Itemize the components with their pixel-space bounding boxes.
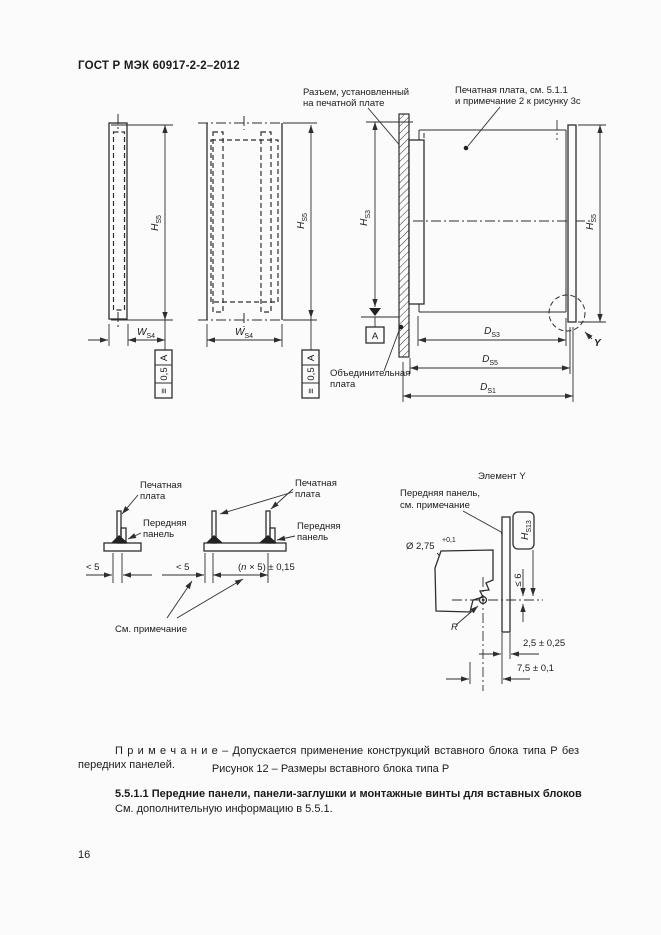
panel-note-label: Передняя панель, xyxy=(400,488,480,499)
svg-text:0,5: 0,5 xyxy=(306,367,317,380)
datum-triangle xyxy=(369,308,381,316)
top-figure: Разъем, установленный на печатной плате … xyxy=(0,80,661,415)
bottom-figure: Печатная плата Передняя панель < 5 Печат… xyxy=(0,465,661,700)
single-board-section: Печатная плата Передняя панель < 5 xyxy=(86,480,187,583)
svg-text:плата: плата xyxy=(140,491,166,502)
datum-a-label: A xyxy=(372,331,379,342)
section-heading: 5.5.1.1 Передние панели, панели-заглушки… xyxy=(115,788,582,800)
dim-lt5-label: < 5 xyxy=(86,562,99,573)
connector-body xyxy=(409,140,424,304)
svg-text:плата: плата xyxy=(330,379,356,390)
dim-ds1-label: DS1 xyxy=(480,382,496,395)
leader-dot xyxy=(399,325,404,330)
svg-text:A: A xyxy=(159,354,170,361)
dim-hs5-label: HS5 xyxy=(150,215,163,231)
page-number: 16 xyxy=(78,849,90,861)
backplane-bar xyxy=(399,114,409,357)
front-panel-bar xyxy=(568,125,576,322)
dim-ws4-label: WS4 xyxy=(235,327,253,340)
svg-text:см. примечание: см. примечание xyxy=(400,500,470,511)
tolerance-frame: A 0,5 ≡ xyxy=(155,350,172,398)
mount-foot xyxy=(259,535,277,543)
svg-text:панель: панель xyxy=(297,532,328,543)
front-view-unit: WS4 HS5 A 0,5 ≡ xyxy=(198,116,319,398)
detail-circle-y xyxy=(549,295,585,331)
svg-text:Объединительная: Объединительная xyxy=(330,368,410,379)
side-view-unit: HS5 WS4 A 0,5 ≡ xyxy=(88,114,173,398)
dim-ds5-label: DS5 xyxy=(482,354,498,367)
front-panel-bar xyxy=(502,517,510,632)
dim-ds3-label: DS3 xyxy=(484,326,500,339)
figure-caption: Рисунок 12 – Размеры вставного блока тип… xyxy=(0,763,661,775)
svg-text:Печатная плата, см. 5.1.1: Печатная плата, см. 5.1.1 xyxy=(455,85,568,96)
callout-pcb: Печатная плата, см. 5.1.1 и примечание 2… xyxy=(455,85,581,150)
see-note-label: См. примечание xyxy=(115,624,187,635)
svg-text:0,5: 0,5 xyxy=(159,367,170,380)
svg-text:и примечание 2 к рисунку 3c: и примечание 2 к рисунку 3c xyxy=(455,96,581,107)
svg-text:≡: ≡ xyxy=(306,388,317,394)
tolerance-frame: A 0,5 ≡ xyxy=(302,350,319,398)
svg-text:плата: плата xyxy=(295,489,321,500)
dim-hs5-label: HS5 xyxy=(585,214,598,230)
dim-hs3-label: HS3 xyxy=(359,210,372,226)
doc-header: ГОСТ Р МЭК 60917-2-2–2012 xyxy=(78,60,240,72)
mount-foot xyxy=(206,535,223,543)
svg-text:на печатной плате: на печатной плате xyxy=(303,98,384,109)
panel-label: Передняя xyxy=(297,521,341,532)
leader-dot xyxy=(464,146,469,151)
dim-ws4-label: WS4 xyxy=(137,327,155,340)
dim-thickness-label: 2,5 ± 0,25 xyxy=(523,638,565,649)
dim-pitch-label: (n × 5) ± 0,15 xyxy=(238,562,295,573)
dia-tol-plus: +0,1 xyxy=(442,537,456,544)
svg-text:A: A xyxy=(306,354,317,361)
dim-lt5-label: < 5 xyxy=(176,562,189,573)
section-text: См. дополнительную информацию в 5.5.1. xyxy=(115,803,333,815)
dim-hs13-label: HS13 xyxy=(520,520,533,540)
callout-backplane: Объединительная плата xyxy=(330,325,410,390)
pcb-label: Печатная xyxy=(295,478,337,489)
dim-le6-label: ≤ 6 xyxy=(513,573,524,586)
element-y-title: Элемент Y xyxy=(478,471,526,482)
dia-label: Ø 2,75 xyxy=(406,541,435,552)
element-y-detail: Элемент Y Передняя панель, см. примечани… xyxy=(400,471,565,691)
dim-offset-label: 7,5 ± 0,1 xyxy=(517,663,554,674)
detail-ref-label: Y xyxy=(594,338,602,349)
svg-text:≡: ≡ xyxy=(159,388,170,394)
depth-side-view: HS3 A Объединительная плата DS3 DS5 xyxy=(330,114,606,402)
dim-hs5-label: HS5 xyxy=(296,213,309,229)
svg-text:панель: панель xyxy=(143,529,174,540)
svg-text:Разъем, установленный: Разъем, установленный xyxy=(303,87,409,98)
document-page: ГОСТ Р МЭК 60917-2-2–2012 Разъем, устано… xyxy=(0,0,661,935)
panel-label: Передняя xyxy=(143,518,187,529)
pcb-label: Печатная xyxy=(140,480,182,491)
